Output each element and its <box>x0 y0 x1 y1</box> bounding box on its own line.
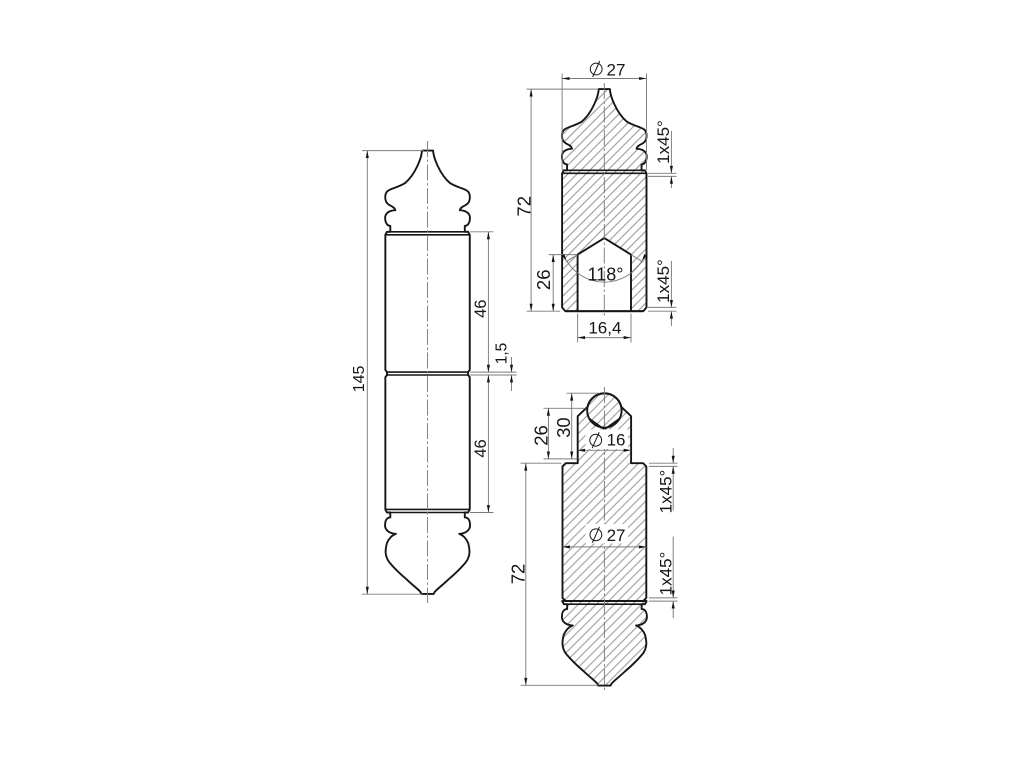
svg-text:16: 16 <box>607 431 626 450</box>
svg-text:27: 27 <box>607 526 626 545</box>
svg-text:16,4: 16,4 <box>588 319 621 338</box>
svg-text:46: 46 <box>472 439 490 457</box>
svg-text:46: 46 <box>472 300 490 318</box>
svg-text:1x45°: 1x45° <box>654 259 673 303</box>
svg-text:118°: 118° <box>588 265 624 285</box>
svg-text:1,5: 1,5 <box>494 343 511 365</box>
svg-text:72: 72 <box>507 564 528 585</box>
svg-text:27: 27 <box>607 61 626 80</box>
svg-text:26: 26 <box>533 270 554 291</box>
svg-text:30: 30 <box>553 417 574 438</box>
svg-text:145: 145 <box>351 365 368 392</box>
svg-text:1x45°: 1x45° <box>657 470 676 514</box>
svg-text:26: 26 <box>531 425 552 446</box>
svg-text:72: 72 <box>514 196 535 217</box>
svg-text:1x45°: 1x45° <box>654 120 673 164</box>
svg-text:1x45°: 1x45° <box>657 552 676 596</box>
